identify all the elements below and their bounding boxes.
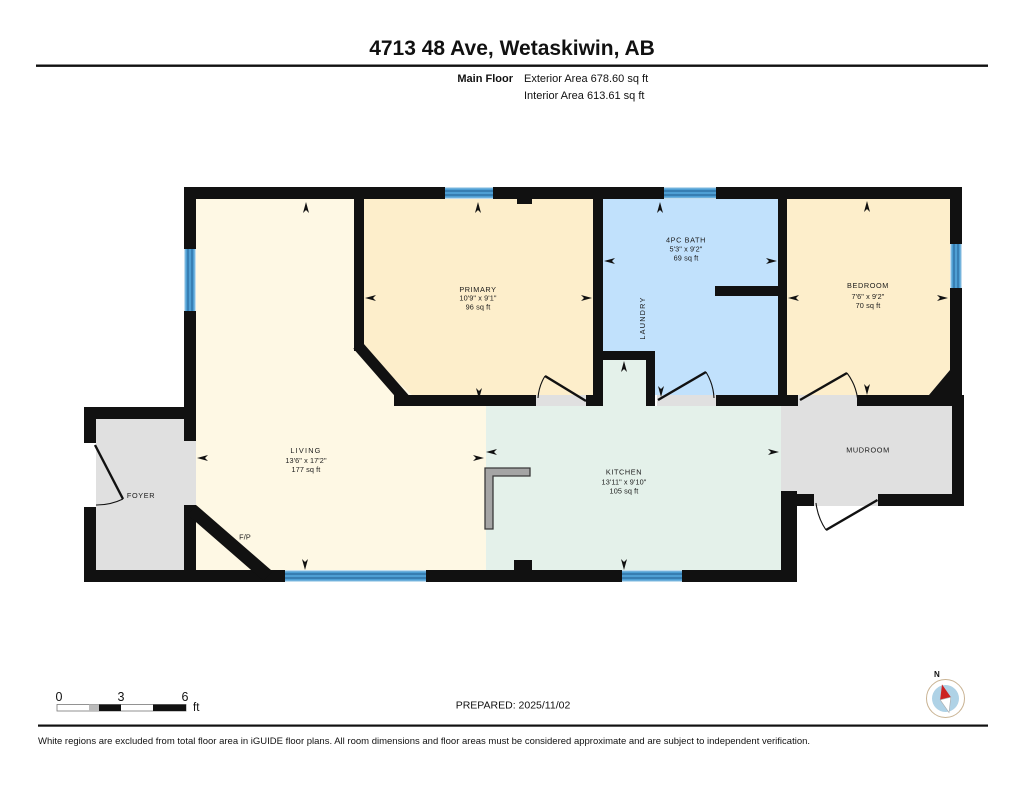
- svg-text:69 sq ft: 69 sq ft: [674, 254, 699, 263]
- svg-text:70 sq ft: 70 sq ft: [856, 301, 881, 310]
- svg-text:LIVING: LIVING: [290, 446, 321, 455]
- svg-text:10'9" x 9'1": 10'9" x 9'1": [459, 294, 496, 303]
- svg-text:4PC BATH: 4PC BATH: [666, 236, 706, 245]
- svg-text:FOYER: FOYER: [127, 491, 155, 500]
- svg-text:Exterior Area 678.60 sq ft: Exterior Area 678.60 sq ft: [524, 73, 648, 85]
- svg-text:Main Floor: Main Floor: [457, 73, 513, 85]
- svg-text:White regions are excluded fro: White regions are excluded from total fl…: [38, 736, 810, 747]
- svg-text:7'6" x 9'2": 7'6" x 9'2": [851, 292, 884, 301]
- svg-text:N: N: [934, 670, 940, 679]
- svg-text:13'11" x 9'10": 13'11" x 9'10": [602, 478, 647, 487]
- svg-text:13'6" x 17'2": 13'6" x 17'2": [285, 456, 327, 465]
- svg-text:Interior Area 613.61 sq ft: Interior Area 613.61 sq ft: [524, 90, 644, 102]
- svg-text:KITCHEN: KITCHEN: [606, 468, 642, 477]
- svg-text:BEDROOM: BEDROOM: [847, 281, 889, 290]
- svg-text:0: 0: [56, 690, 63, 704]
- svg-text:5'3" x 9'2": 5'3" x 9'2": [669, 245, 702, 254]
- svg-text:6: 6: [182, 690, 189, 704]
- svg-text:PREPARED: 2025/11/02: PREPARED: 2025/11/02: [456, 700, 571, 712]
- svg-text:F/P: F/P: [239, 533, 251, 542]
- svg-text:96 sq ft: 96 sq ft: [466, 303, 491, 312]
- svg-text:105 sq ft: 105 sq ft: [610, 487, 639, 496]
- svg-text:MUDROOM: MUDROOM: [846, 446, 890, 455]
- svg-text:ft: ft: [193, 702, 200, 714]
- svg-text:LAUNDRY: LAUNDRY: [638, 296, 647, 339]
- svg-text:177 sq ft: 177 sq ft: [292, 465, 321, 474]
- svg-text:4713 48 Ave, Wetaskiwin, AB: 4713 48 Ave, Wetaskiwin, AB: [369, 37, 655, 60]
- svg-text:3: 3: [118, 690, 125, 704]
